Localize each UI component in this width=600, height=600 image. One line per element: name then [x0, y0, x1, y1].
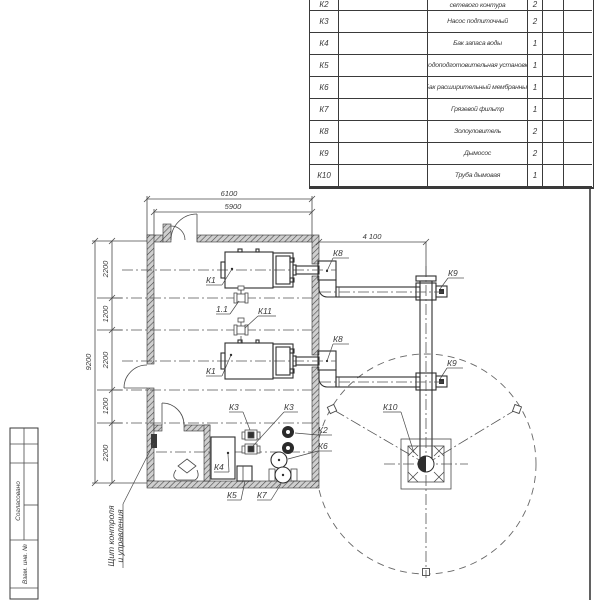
part-pos: К8 — [310, 121, 339, 143]
dim-width-inner: 5900 — [225, 202, 243, 211]
guy-anchor — [513, 405, 522, 414]
makeup-pumps-k3 — [242, 430, 260, 454]
part-name: Насос подпиточный — [428, 11, 528, 33]
label-k6: К6 — [288, 441, 332, 459]
mud-filter-k7 — [269, 467, 297, 483]
dim-chain-5: 2200 — [101, 444, 110, 463]
part-name: Труба дымовая — [428, 165, 528, 187]
boiler-k1-bottom — [221, 340, 296, 379]
part-designation — [339, 0, 428, 11]
dimension-texts: 6100 5900 4 100 9200 2200 1200 2200 1200… — [84, 189, 382, 462]
svg-text:К4: К4 — [214, 462, 224, 472]
dim-chain-3: 2200 — [101, 351, 110, 370]
part-name: Водоподготовительная установка — [428, 55, 528, 77]
dim-flue-offset: 4 100 — [363, 232, 383, 241]
svg-text:1.1: 1.1 — [216, 304, 228, 314]
part-pos: К7 — [310, 99, 339, 121]
svg-text:К5: К5 — [227, 490, 237, 500]
part-name: сетевого контура — [428, 0, 528, 11]
part-qty: 1 — [528, 55, 543, 77]
centerlines — [112, 266, 468, 578]
smoke-fan-k9-core — [439, 379, 444, 384]
part-qty: 2 — [528, 121, 543, 143]
flue-elbow — [319, 370, 336, 387]
part-pos: К5 — [310, 55, 339, 77]
part-pos: К3 — [310, 11, 339, 33]
svg-text:К6: К6 — [318, 441, 328, 451]
part-qty: 1 — [528, 77, 543, 99]
part-pos: К2 — [310, 0, 339, 11]
flue-elbow — [319, 280, 336, 297]
part-name: Дымосос — [428, 143, 528, 165]
dim-width-outer: 6100 — [221, 189, 239, 198]
label-k10: К10 — [383, 402, 414, 453]
parts-list-table: К2 сетевого контура 2 К3 Насос подпиточн… — [309, 0, 594, 189]
svg-text:К8: К8 — [333, 334, 343, 344]
water-treatment-k5 — [237, 466, 252, 481]
part-qty: 1 — [528, 99, 543, 121]
svg-text:К3: К3 — [229, 402, 239, 412]
label-k1-top: К1 — [206, 269, 232, 285]
strip-agreed-label: Согласовано — [15, 481, 22, 521]
label-k1-bottom: К1 — [206, 355, 231, 376]
smoke-fan-k9-core — [439, 289, 444, 294]
part-qty: 1 — [528, 33, 543, 55]
floor-drain — [174, 459, 198, 480]
part-qty: 2 — [528, 11, 543, 33]
dim-chain-2: 1200 — [101, 305, 110, 323]
part-name: Грязевой фильтр — [428, 99, 528, 121]
network-pumps-k2 — [282, 426, 294, 454]
dim-chain-4: 1200 — [101, 397, 110, 415]
label-k3-left: К3 — [229, 402, 250, 430]
part-name: Золоуловитель — [428, 121, 528, 143]
part-qty: 2 — [528, 143, 543, 165]
valve-k11 — [234, 318, 248, 343]
part-qty: 1 — [528, 165, 543, 187]
svg-text:К11: К11 — [258, 306, 272, 316]
label-k11: К11 — [245, 306, 276, 328]
boiler-k1-top — [221, 249, 296, 288]
svg-text:К10: К10 — [383, 402, 398, 412]
part-name: Бак запаса воды — [428, 33, 528, 55]
svg-text:К8: К8 — [333, 248, 343, 258]
svg-text:К3: К3 — [284, 402, 294, 412]
water-tank-k4 — [211, 437, 235, 479]
part-qty: 2 — [528, 0, 543, 11]
part-pos: К10 — [310, 165, 339, 187]
svg-text:К1: К1 — [206, 275, 216, 285]
callout-line2: и управления — [115, 509, 125, 563]
svg-text:К2: К2 — [318, 425, 328, 435]
part-name: Бак расширительный мембранный — [428, 77, 528, 99]
expansion-tank-k6 — [271, 452, 287, 468]
part-pos: К6 — [310, 77, 339, 99]
doors — [124, 214, 197, 425]
svg-text:К1: К1 — [206, 366, 216, 376]
dim-chain-1: 2200 — [101, 260, 110, 279]
part-pos: К4 — [310, 33, 339, 55]
control-panel — [151, 434, 157, 448]
label-k8-bottom: К8 — [326, 334, 349, 362]
svg-text:К9: К9 — [448, 268, 458, 278]
svg-text:К9: К9 — [447, 358, 457, 368]
strip-inv-label: Взам. инв. № — [22, 544, 29, 584]
svg-text:К7: К7 — [257, 490, 267, 500]
part-pos: К9 — [310, 143, 339, 165]
dim-height-overall: 9200 — [84, 353, 93, 371]
label-k8-top: К8 — [326, 248, 349, 272]
